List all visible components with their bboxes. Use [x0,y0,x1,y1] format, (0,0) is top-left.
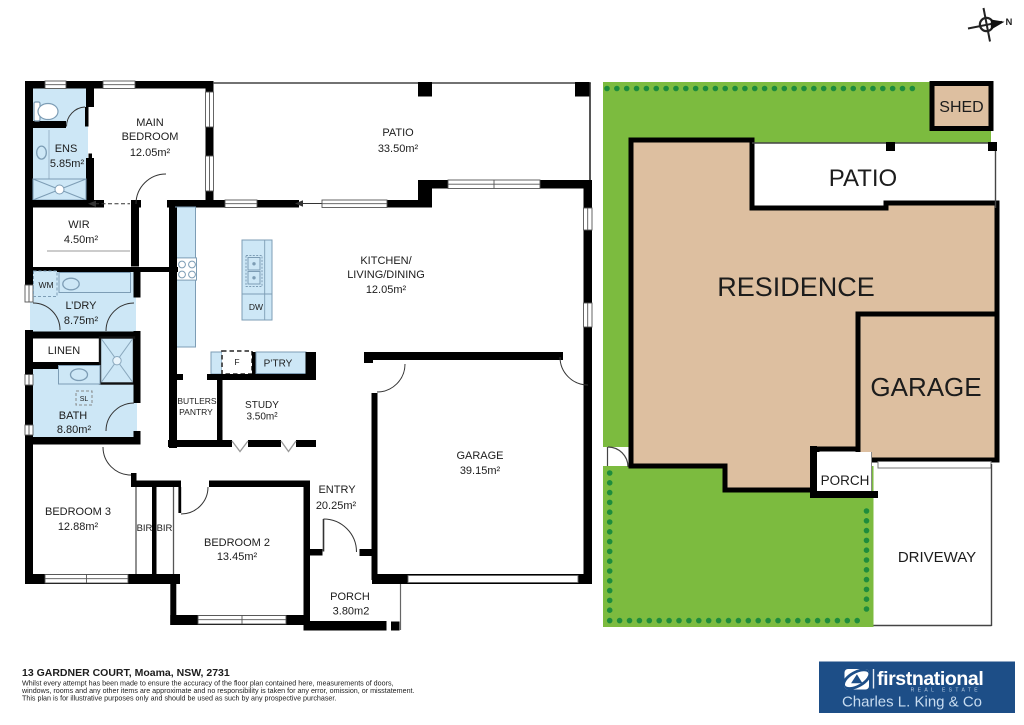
svg-text:12.05m²: 12.05m² [130,147,171,159]
svg-text:P’TRY: P’TRY [264,359,293,370]
svg-text:13 GARDNER COURT, Moama, NSW,: 13 GARDNER COURT, Moama, NSW, 2731 [22,667,230,679]
svg-text:Charles L. King & Co: Charles L. King & Co [842,694,982,711]
svg-text:39.15m²: 39.15m² [460,465,501,477]
svg-text:WIR: WIR [68,219,89,231]
svg-text:PORCH: PORCH [330,591,370,603]
svg-text:3.50m²: 3.50m² [246,412,278,423]
svg-text:PATIO: PATIO [829,165,897,192]
svg-text:This plan is for illustrative: This plan is for illustrative purposes o… [22,695,336,703]
svg-text:N: N [1006,17,1013,28]
svg-text:20.25m²: 20.25m² [316,500,357,512]
svg-text:PATIO: PATIO [382,127,414,139]
svg-text:PORCH: PORCH [821,473,870,488]
svg-text:DW: DW [249,302,263,312]
svg-text:4.50m²: 4.50m² [64,234,99,246]
svg-text:L’DRY: L’DRY [66,300,98,312]
svg-text:PANTRY: PANTRY [179,407,213,417]
svg-text:SL: SL [80,396,89,403]
svg-text:8.75m²: 8.75m² [64,315,99,327]
svg-text:KITCHEN/: KITCHEN/ [360,255,412,267]
svg-text:WM: WM [38,280,53,290]
svg-text:5.85m²: 5.85m² [50,158,85,170]
svg-text:BUTLERS: BUTLERS [177,396,217,406]
svg-text:ENS: ENS [55,143,78,155]
svg-text:BIR: BIR [137,523,153,534]
svg-text:GARAGE: GARAGE [456,450,503,462]
svg-text:BEDROOM 2: BEDROOM 2 [204,537,270,549]
svg-text:8.80m²: 8.80m² [57,424,92,436]
svg-text:BEDROOM 3: BEDROOM 3 [45,506,111,518]
svg-text:12.05m²: 12.05m² [366,284,407,296]
svg-text:3.80m2: 3.80m2 [333,606,370,618]
svg-text:SHED: SHED [939,99,983,116]
svg-text:33.50m²: 33.50m² [378,143,419,155]
svg-text:RESIDENCE: RESIDENCE [717,272,875,302]
svg-text:BATH: BATH [59,410,88,422]
svg-text:12.88m²: 12.88m² [58,521,99,533]
svg-text:STUDY: STUDY [245,400,279,411]
svg-text:ENTRY: ENTRY [318,484,356,496]
svg-text:13.45m²: 13.45m² [217,551,258,563]
svg-text:LIVING/DINING: LIVING/DINING [347,269,425,281]
svg-text:LINEN: LINEN [48,345,80,357]
svg-text:BIR: BIR [157,523,173,534]
svg-text:DRIVEWAY: DRIVEWAY [898,549,976,566]
svg-text:GARAGE: GARAGE [870,372,981,402]
svg-text:MAIN: MAIN [136,117,164,129]
svg-text:F: F [234,357,239,367]
svg-text:BEDROOM: BEDROOM [122,131,179,143]
